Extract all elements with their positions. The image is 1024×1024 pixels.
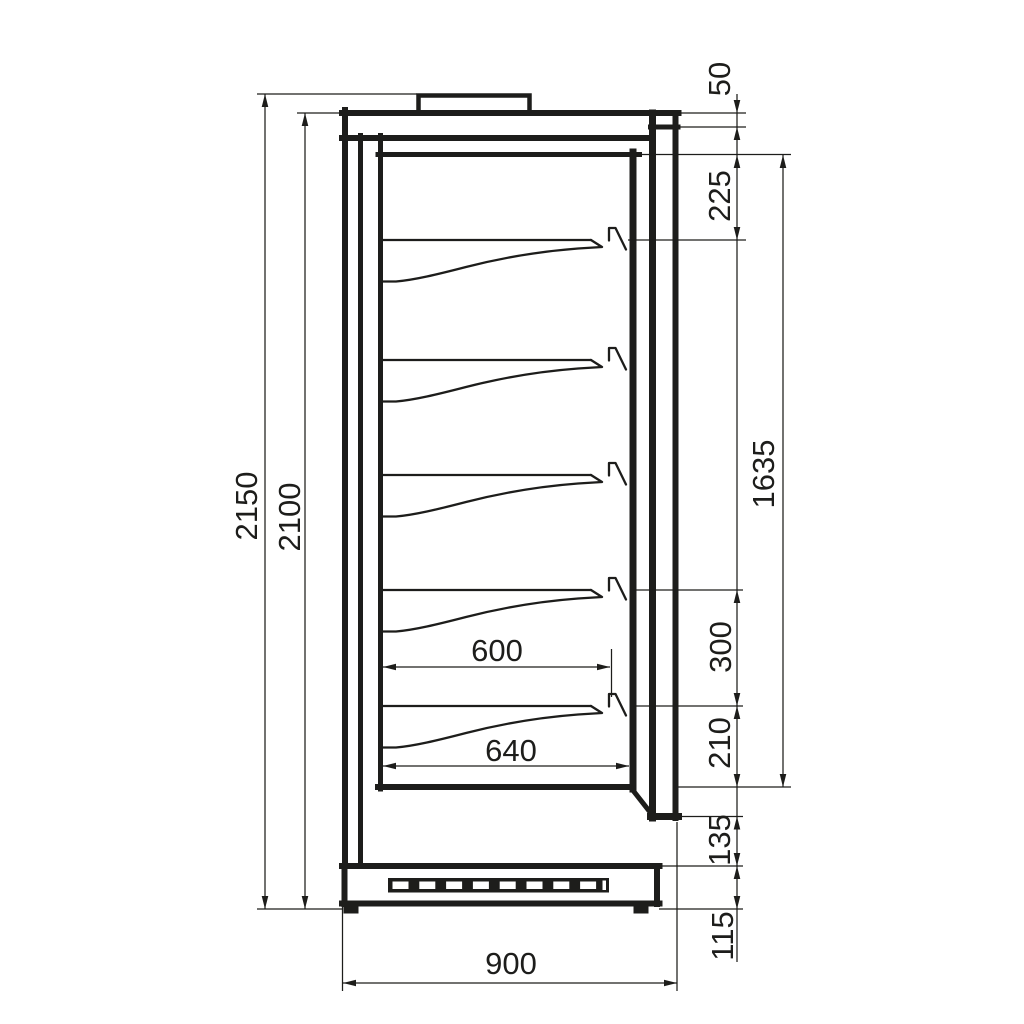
grille-slot: [473, 882, 489, 890]
dim-body-height-label: 2100: [272, 483, 307, 552]
dim-interior-height-label: 1635: [746, 440, 781, 509]
cabinet-side-section-drawing: 2150 2100 50 225 1635 300 210 135 115 60…: [0, 0, 1024, 1024]
grille-slot: [419, 882, 435, 890]
dim-overall-height-label: 2150: [229, 472, 264, 541]
grille-slot: [553, 882, 569, 890]
drawing-canvas: 2150 2100 50 225 1635 300 210 135 115 60…: [0, 0, 1024, 1024]
dim-door-bottom-label: 135: [702, 814, 737, 866]
foot-right: [634, 906, 649, 914]
dim-shelf-spacing-label: 300: [703, 621, 738, 673]
dim-top-clearance-label: 225: [702, 170, 737, 222]
dim-shelf-depth-label: 600: [471, 633, 523, 668]
grille-slot: [580, 882, 596, 890]
grille-slot: [393, 882, 409, 890]
grille-slot: [500, 882, 516, 890]
foot-left: [344, 906, 359, 914]
dim-bottom-clearance-label: 210: [702, 717, 737, 769]
grille-slot: [527, 882, 543, 890]
dim-base-height-label: 115: [705, 911, 740, 960]
dim-top-panel-label: 50: [702, 62, 737, 96]
dim-overall-depth-label: 900: [485, 946, 537, 981]
grille-slot: [446, 882, 462, 890]
dim-interior-depth-label: 640: [485, 733, 537, 768]
ventilation-grille: [388, 878, 609, 893]
grille-slot-narrow: [603, 881, 607, 891]
